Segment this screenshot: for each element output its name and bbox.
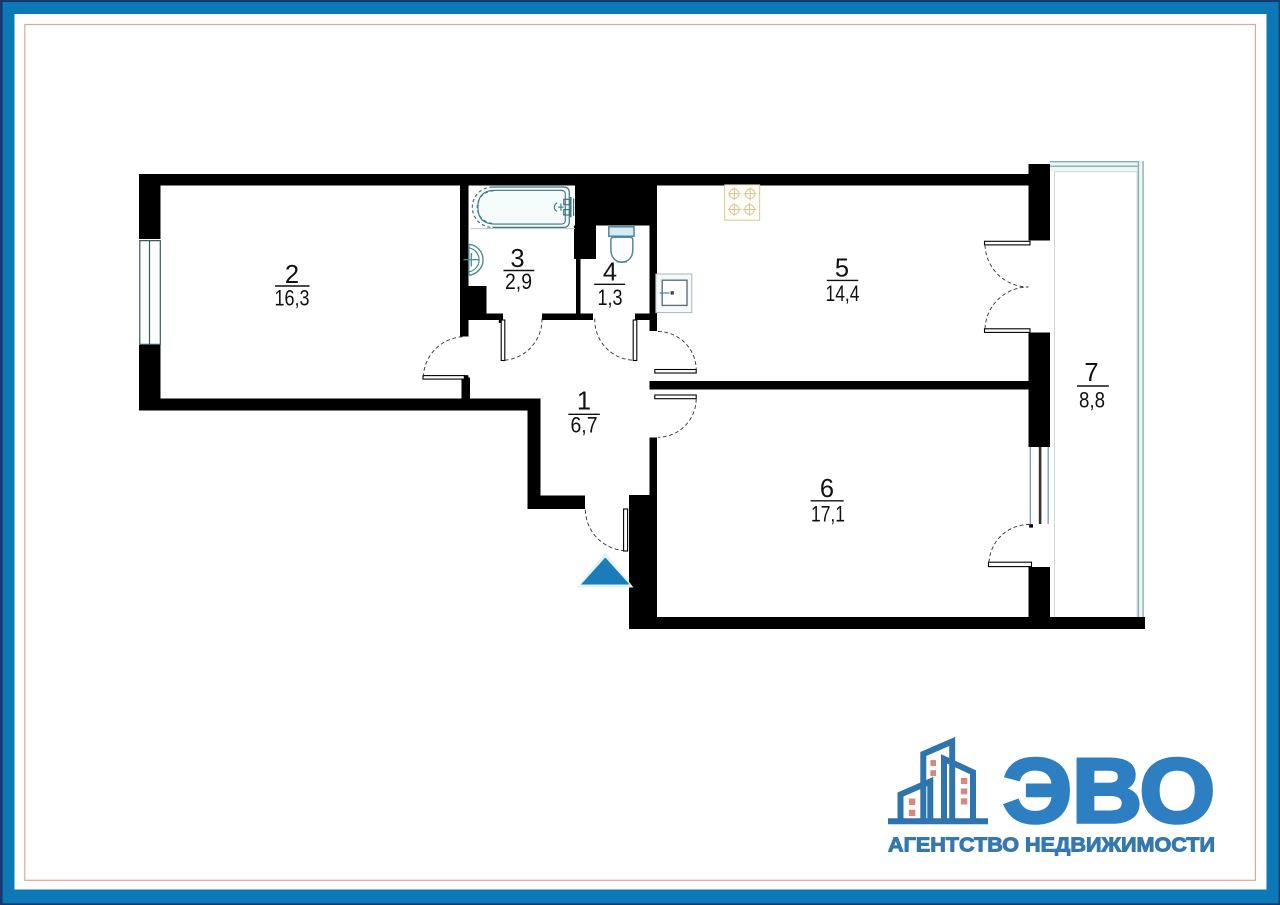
svg-text:1,3: 1,3 bbox=[598, 285, 623, 310]
svg-text:6: 6 bbox=[820, 475, 834, 503]
svg-text:6,7: 6,7 bbox=[571, 413, 598, 438]
svg-text:1: 1 bbox=[577, 388, 591, 416]
svg-text:14,4: 14,4 bbox=[826, 281, 860, 306]
svg-text:8,8: 8,8 bbox=[1079, 388, 1105, 413]
svg-text:2,9: 2,9 bbox=[505, 269, 532, 294]
svg-text:4: 4 bbox=[603, 259, 617, 287]
svg-text:16,3: 16,3 bbox=[275, 286, 310, 311]
svg-text:17,1: 17,1 bbox=[811, 502, 845, 527]
svg-text:5: 5 bbox=[835, 254, 849, 282]
svg-text:ЭВО: ЭВО bbox=[1003, 741, 1215, 842]
svg-text:АГЕНТСТВО НЕДВИЖИМОСТИ: АГЕНТСТВО НЕДВИЖИМОСТИ bbox=[888, 834, 1215, 857]
svg-text:7: 7 bbox=[1084, 359, 1098, 387]
